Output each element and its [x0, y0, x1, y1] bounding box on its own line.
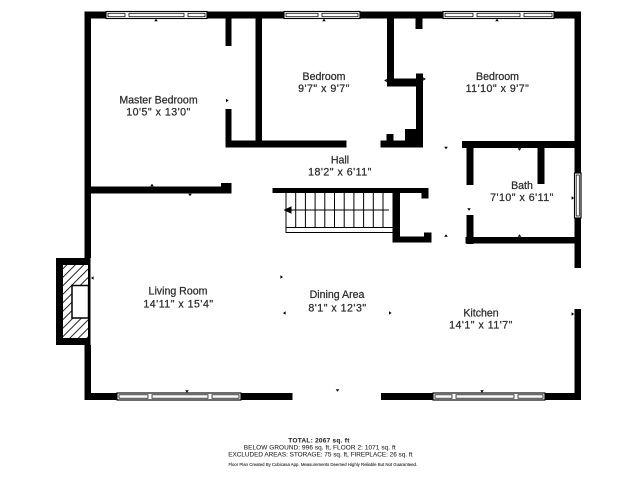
svg-text:EXCLUDED AREAS: STORAGE: 75 sq: EXCLUDED AREAS: STORAGE: 75 sq. ft, FIRE…	[228, 451, 412, 458]
svg-text:TOTAL: 2067 sq. ft: TOTAL: 2067 sq. ft	[288, 438, 350, 445]
svg-text:Bedroom: Bedroom	[476, 71, 519, 83]
svg-text:Living Room: Living Room	[149, 286, 208, 298]
svg-text:Bedroom: Bedroom	[303, 71, 346, 83]
svg-text:11'10" x 9'7": 11'10" x 9'7"	[466, 83, 530, 95]
svg-text:7'10" x 6'11": 7'10" x 6'11"	[490, 192, 554, 204]
svg-text:Master Bedroom: Master Bedroom	[119, 95, 197, 107]
svg-text:Hall: Hall	[331, 155, 349, 167]
svg-text:Bath: Bath	[511, 180, 533, 192]
svg-text:9'7" x 9'7": 9'7" x 9'7"	[298, 83, 350, 95]
svg-text:18'2" x 6'11": 18'2" x 6'11"	[308, 167, 372, 179]
svg-text:Dining Area: Dining Area	[310, 289, 365, 301]
svg-text:8'1" x 12'3": 8'1" x 12'3"	[308, 303, 366, 315]
svg-text:14'11" x 15'4": 14'11" x 15'4"	[143, 299, 213, 311]
svg-text:14'1" x 11'7": 14'1" x 11'7"	[449, 320, 513, 332]
svg-text:Floor Plan Created By Cubicasa: Floor Plan Created By Cubicasa App. Meas…	[228, 462, 417, 467]
svg-text:Kitchen: Kitchen	[463, 308, 498, 320]
svg-text:10'5" x 13'0": 10'5" x 13'0"	[126, 107, 191, 119]
